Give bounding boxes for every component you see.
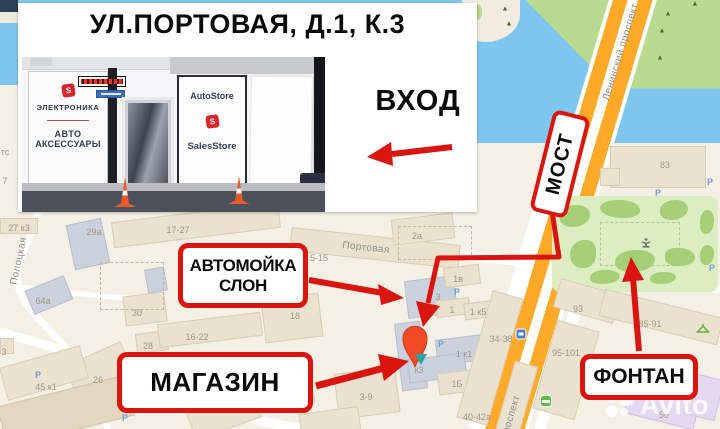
tree-icon: ▲ — [665, 11, 672, 18]
entrance-label: ВХОД — [348, 85, 488, 118]
building — [600, 168, 620, 186]
edge-embankment — [0, 12, 18, 23]
edge-label-fragment: 7 — [2, 176, 7, 186]
parking-icon: Р — [438, 339, 444, 349]
tree-icon: ▲ — [506, 21, 513, 28]
parking-icon: Р — [707, 177, 713, 187]
banner-brand: ЭЛЕКТРОНИКА — [29, 103, 107, 112]
tree-icon: ▲ — [692, 1, 699, 8]
building-label: 17-27 — [166, 225, 189, 235]
clothes-store-icon — [697, 321, 710, 339]
construction-zone — [398, 226, 472, 260]
building-label: 85-91 — [638, 319, 661, 329]
parking-icon: Р — [454, 287, 460, 297]
tree-icon: ▲ — [657, 55, 664, 62]
building-label: 30 — [132, 308, 142, 318]
building-label: 93 — [573, 304, 583, 314]
carwash-callout-line1: АВТОМОЙКА — [190, 256, 297, 275]
park-fountain-square — [552, 196, 718, 292]
banner-line: АВТО — [29, 129, 107, 139]
right-banner: AutoStore S SalesStore — [177, 75, 247, 192]
edge-pier — [0, 0, 18, 12]
parking-icon: Р — [655, 188, 661, 198]
building-label: 5-15 — [310, 253, 328, 263]
building-label: 26 — [93, 375, 103, 385]
building-label: 3-9 — [359, 392, 372, 402]
building-label: 45 к1 — [35, 382, 56, 392]
fountain-callout: ФОНТАН — [580, 354, 698, 400]
tree-icon: ▲ — [502, 6, 509, 13]
building-label: 1 к5 — [470, 307, 486, 317]
carwash-callout-line2: СЛОН — [219, 276, 267, 295]
building-label: 1 — [449, 305, 454, 315]
tree-icon: ▲ — [659, 28, 666, 35]
banner-line: AutoStore — [179, 91, 245, 101]
photo-panel: УЛ.ПОРТОВАЯ, Д.1, К.3 S ЭЛЕКТРОНИКА АВТО… — [18, 3, 477, 212]
building-label: 29а — [86, 227, 101, 237]
building-label: 28 — [143, 341, 153, 351]
led-ticker — [78, 76, 126, 87]
address-title: УЛ.ПОРТОВАЯ, Д.1, К.3 — [18, 9, 477, 40]
banner-line: АКСЕССУАРЫ — [29, 139, 107, 149]
parking-icon: Р — [709, 263, 715, 273]
building-label: 3 — [1, 347, 6, 357]
construction-zone — [100, 262, 164, 310]
building-label: 2а — [412, 231, 422, 241]
street-sign — [96, 90, 125, 98]
bus-stop-icon — [516, 329, 527, 340]
building-label: 18 — [290, 311, 300, 321]
entrance-marker-icon — [415, 354, 427, 365]
building-label: 3 — [435, 292, 440, 302]
banner-line: SalesStore — [179, 141, 245, 152]
parking-icon: Р — [35, 370, 41, 380]
building-label: 95-101 — [552, 348, 580, 358]
building — [610, 146, 706, 188]
pavement — [22, 191, 325, 212]
carwash-callout: АВТОМОЙКА СЛОН — [178, 243, 308, 308]
building-label: 40-42а — [463, 412, 491, 422]
storefront-photo: S ЭЛЕКТРОНИКА АВТО АКСЕССУАРЫ AutoStore … — [22, 57, 325, 212]
building-label: 16-22 — [185, 332, 208, 342]
building-label: 27 к3 — [8, 223, 29, 233]
banner-divider — [47, 120, 89, 121]
entrance-door — [122, 97, 174, 195]
store-logo-icon: S — [205, 114, 220, 129]
transit-stop-icon — [540, 395, 552, 407]
shop-callout: МАГАЗИН — [117, 352, 313, 413]
building-label: 1в — [453, 274, 463, 284]
store-logo-icon: S — [61, 83, 76, 98]
photo-vent — [30, 58, 52, 66]
destination-pin — [398, 324, 436, 376]
building-label: 83 — [660, 160, 670, 170]
annotated-map-image: ПолоцкаяПортоваяЛенинский проспектпроспе… — [0, 0, 720, 429]
building-label: 34-38 — [489, 334, 512, 344]
fountain-icon — [640, 236, 652, 254]
parking-icon: Р — [122, 413, 128, 423]
edge-label-fragment: тс — [1, 147, 10, 157]
building-label: 1 к1 — [456, 349, 472, 359]
building-label: 1Б — [452, 379, 463, 389]
building-label: 64а — [35, 296, 50, 306]
photo-soffit — [170, 57, 325, 74]
